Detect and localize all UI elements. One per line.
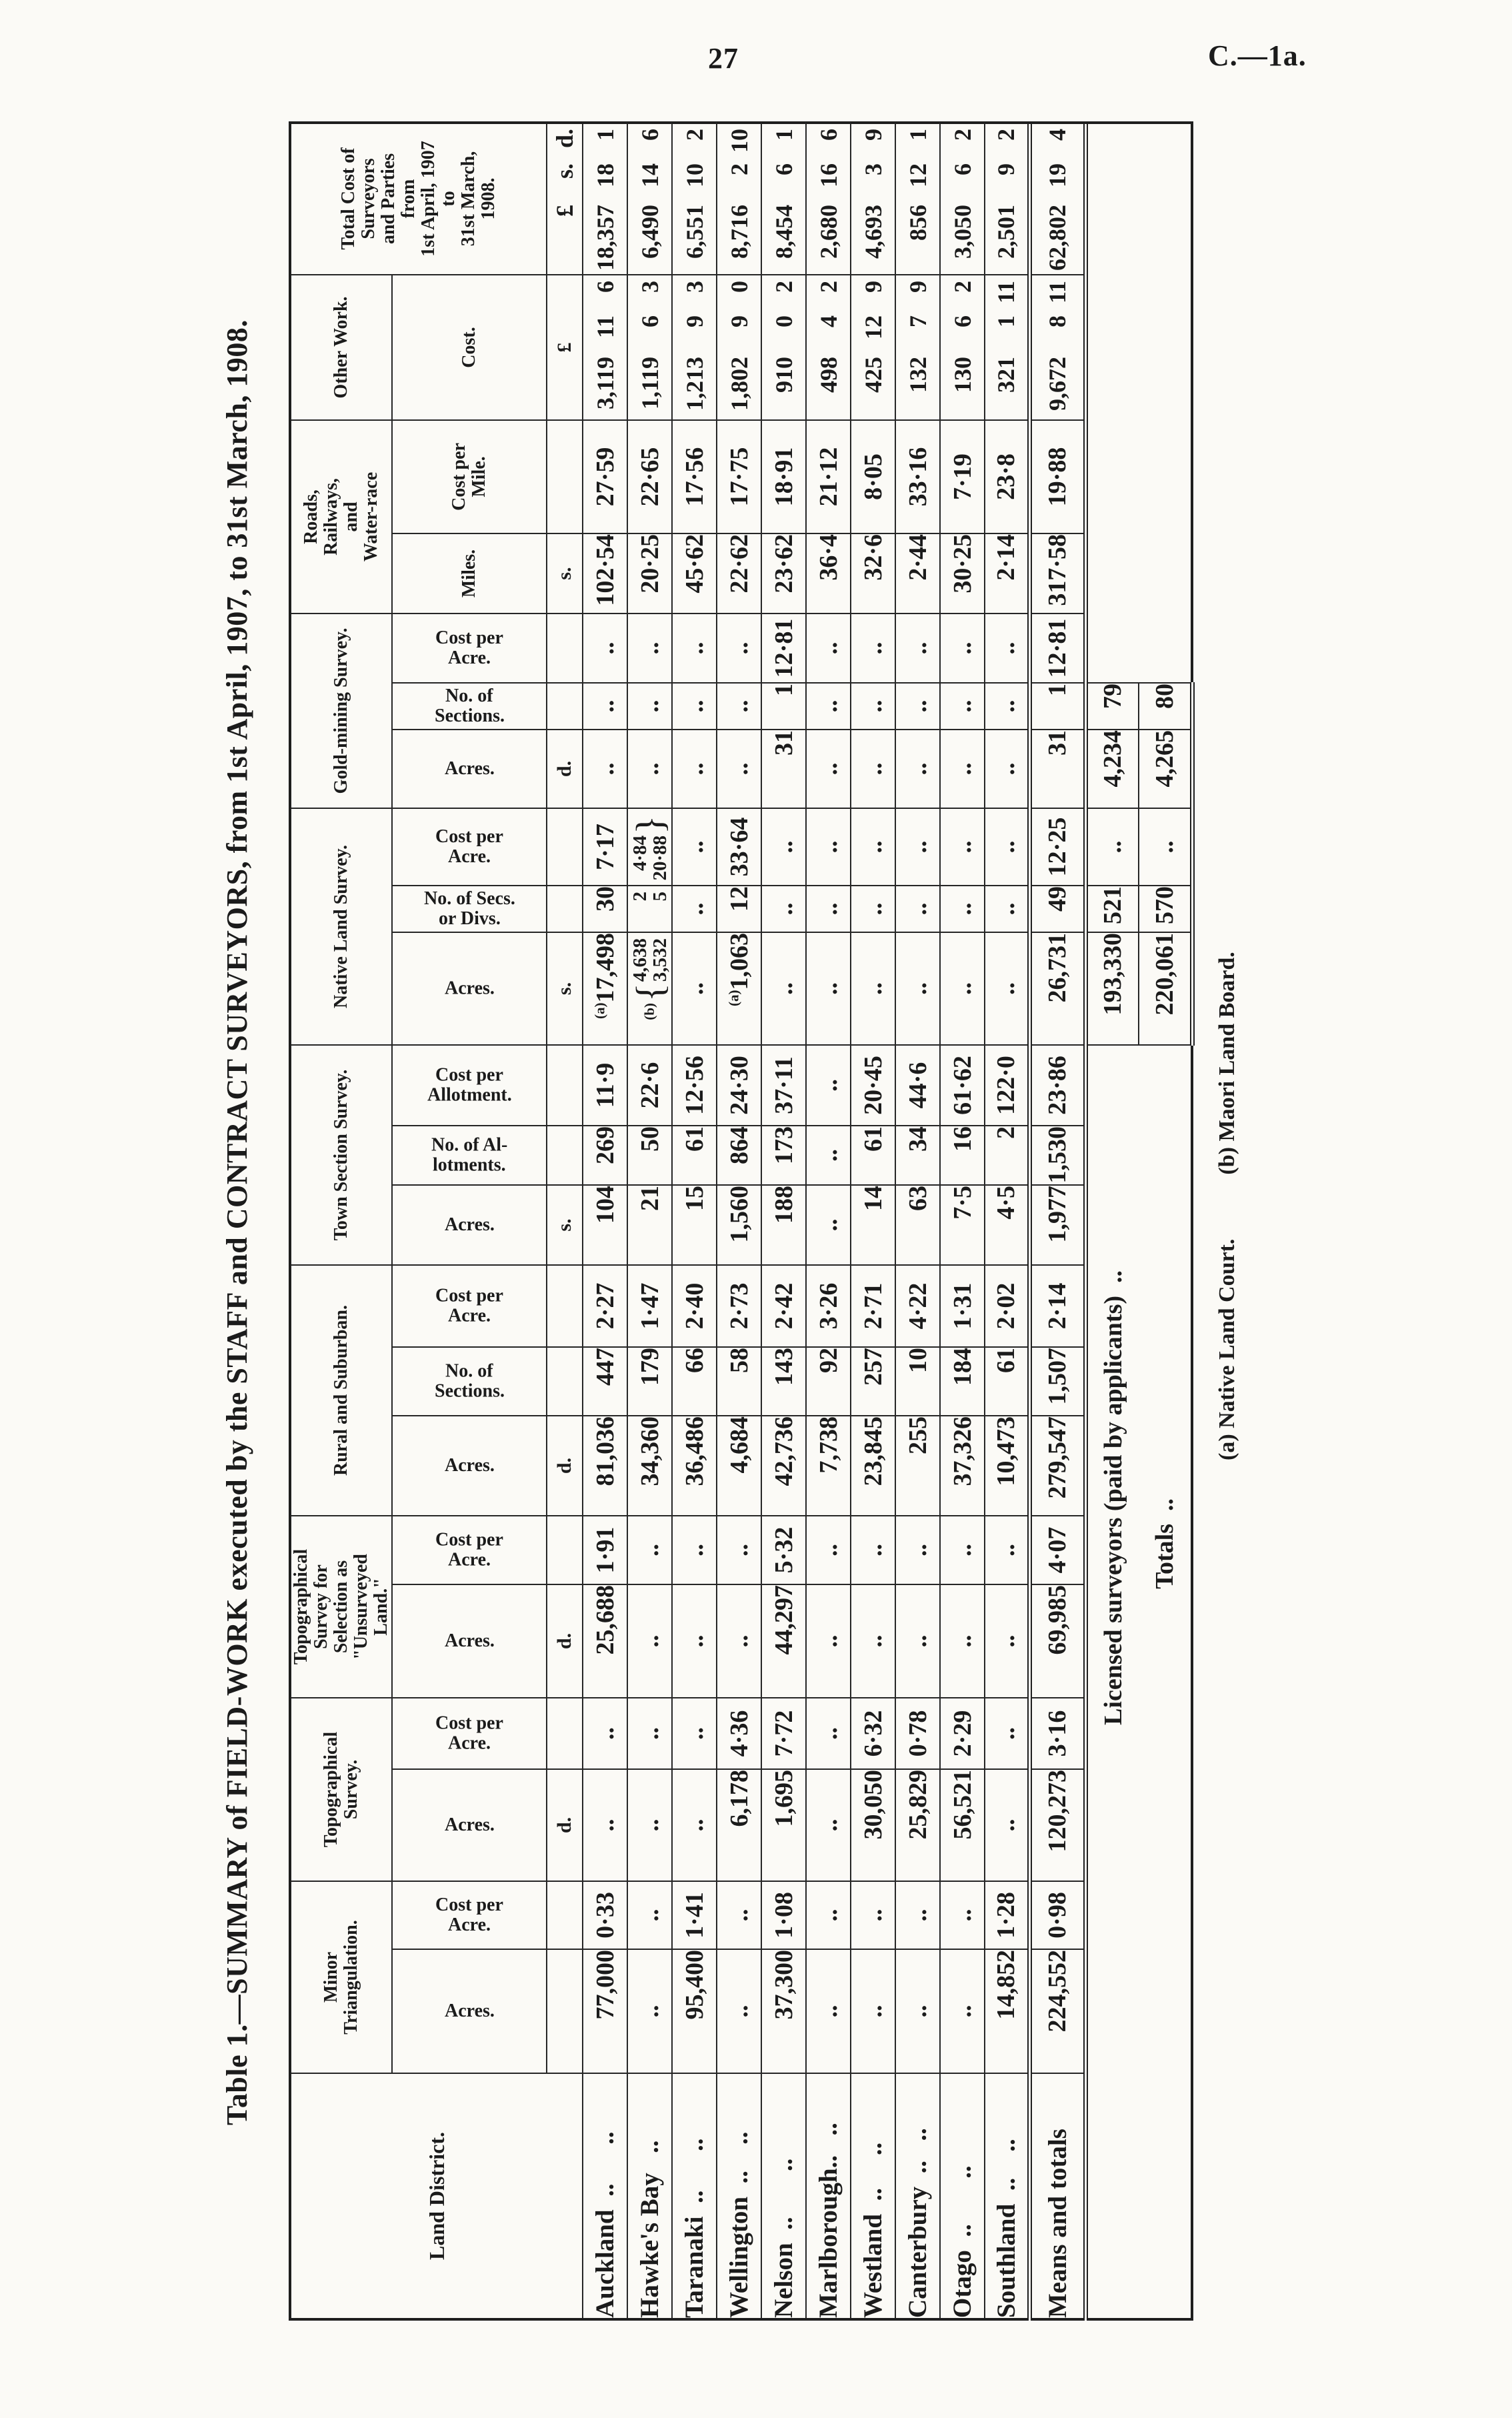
empty-value-cell: .. — [717, 1516, 761, 1584]
money-value: 6,551102 — [681, 123, 709, 274]
money-value-cell: 3,05062 — [940, 123, 985, 275]
column-group-header: Rural and Suburban. — [290, 1265, 392, 1516]
value-cell: 81,036 — [583, 1416, 627, 1516]
empty-value-cell: .. — [627, 614, 672, 683]
value-cell: 16 — [940, 1126, 985, 1185]
value-cell: 56,521 — [940, 1769, 985, 1881]
value-cell: 2·29 — [940, 1698, 985, 1769]
value-cell: 8·05 — [851, 420, 895, 533]
scanned-document-page: { "page": { "number": "27", "doc_ref": "… — [0, 0, 1512, 2418]
column-sub-header: No. of Sections. — [392, 683, 547, 730]
money-part: 3,050 — [949, 205, 977, 274]
money-value-cell: 2,50192 — [985, 123, 1029, 275]
money-part: 6 — [591, 275, 619, 315]
value-cell: 58 — [717, 1347, 761, 1416]
empty-value-cell: .. — [940, 1881, 985, 1949]
money-part: 9 — [904, 275, 932, 315]
money-value-cell: 2,680166 — [806, 123, 851, 275]
column-sub-header: Acres. — [392, 730, 547, 808]
empty-value-cell: .. — [895, 1584, 940, 1698]
value-cell: 0·33 — [583, 1881, 627, 1949]
district-row: Taranaki .. ..95,4001·41........36,48666… — [672, 123, 717, 2319]
empty-value-cell: .. — [985, 932, 1029, 1045]
money-value-cell: 321111 — [985, 275, 1029, 420]
money-part: 9 — [992, 163, 1020, 205]
money-value-cell: 4,69339 — [851, 123, 895, 275]
footnote-marker: (a) — [591, 1002, 607, 1019]
value-cell: 224,552 — [1029, 1949, 1085, 2073]
value-cell: 188 — [761, 1185, 806, 1265]
empty-value-cell: .. — [627, 1584, 672, 1698]
units-cell — [547, 420, 583, 533]
money-value: 1,80290 — [725, 275, 753, 419]
blank-cell — [1085, 1045, 1139, 1126]
empty-value-cell: .. — [940, 932, 985, 1045]
value-cell: 22·62 — [717, 533, 761, 614]
value-cell: 102·54 — [583, 533, 627, 614]
extension-row-label: Licensed surveyors (paid by applicants) … — [1085, 1265, 1139, 2319]
blank-cell — [1085, 1185, 1139, 1265]
money-part: 2 — [949, 123, 977, 163]
money-value-cell: 1,80290 — [717, 275, 761, 420]
extension-value-cell: .. — [1085, 808, 1139, 886]
district-label: Auckland .. .. — [583, 2073, 627, 2319]
units-cell — [547, 1949, 583, 2073]
empty-value-cell: .. — [672, 886, 717, 932]
money-part: 2 — [770, 275, 798, 315]
value-cell: 0·98 — [1029, 1881, 1085, 1949]
value-cell: 7·72 — [761, 1698, 806, 1769]
money-part: d. — [551, 123, 579, 163]
value-cell: 5·32 — [761, 1516, 806, 1584]
table-footnotes: (a) Native Land Court.(b) Maori Land Boa… — [1215, 888, 1240, 1460]
empty-value-cell: .. — [627, 683, 672, 730]
value-cell: 255 — [895, 1416, 940, 1516]
empty-value-cell: .. — [717, 1584, 761, 1698]
value-cell: 20·25 — [627, 533, 672, 614]
value-cell: 37,326 — [940, 1416, 985, 1516]
empty-value-cell: .. — [895, 808, 940, 886]
value-cell: 6·32 — [851, 1698, 895, 1769]
money-value: 3,119116 — [591, 275, 619, 419]
value-cell: 269 — [583, 1126, 627, 1185]
money-part: 9,672 — [1043, 357, 1071, 419]
column-sub-header: Cost per Mile. — [392, 420, 547, 533]
money-value: 62,802194 — [1043, 123, 1071, 274]
value-cell: 44,297 — [761, 1584, 806, 1698]
empty-value-cell: .. — [940, 808, 985, 886]
value-cell: 120,273 — [1029, 1769, 1085, 1881]
column-group-header: Roads, Railways, and Water-race — [290, 420, 392, 614]
value-cell: 179 — [627, 1347, 672, 1416]
empty-value-cell: .. — [985, 683, 1029, 730]
money-part: 321 — [992, 357, 1020, 419]
value-cell: 37·11 — [761, 1045, 806, 1126]
value-cell: 61 — [672, 1126, 717, 1185]
empty-value-cell: .. — [672, 1698, 717, 1769]
empty-value-cell: .. — [806, 1516, 851, 1584]
units-cell — [547, 614, 583, 683]
empty-value-cell: .. — [806, 1584, 851, 1698]
empty-value-cell: .. — [627, 1949, 672, 2073]
column-sub-header: Cost per Acre. — [392, 1881, 547, 1949]
money-value: 2,50192 — [992, 123, 1020, 274]
money-part: 132 — [904, 357, 932, 419]
column-sub-header: No. of Al- lotments. — [392, 1126, 547, 1185]
empty-value-cell: .. — [895, 932, 940, 1045]
empty-value-cell: .. — [985, 1516, 1029, 1584]
blank-cell — [1085, 533, 1139, 614]
units-cell — [547, 886, 583, 932]
blank-cell — [1085, 614, 1139, 683]
money-part: 2 — [992, 123, 1020, 163]
empty-value-cell: .. — [627, 1516, 672, 1584]
value-cell: 2·42 — [761, 1265, 806, 1347]
value-cell: 22·6 — [627, 1045, 672, 1126]
value-cell: 1·31 — [940, 1265, 985, 1347]
empty-value-cell: .. — [985, 730, 1029, 808]
empty-value-cell: .. — [985, 1769, 1029, 1881]
units-cell: d. — [547, 1769, 583, 1881]
money-part: 856 — [904, 205, 932, 274]
extension-value-cell: 521 — [1085, 886, 1139, 932]
money-part: 6 — [949, 163, 977, 205]
empty-value-cell: .. — [806, 730, 851, 808]
value-cell: 14 — [851, 1185, 895, 1265]
money-part: 1 — [591, 123, 619, 163]
money-part: 3 — [681, 275, 709, 315]
units-cell — [547, 808, 583, 886]
money-part: 6 — [770, 163, 798, 205]
district-row: Nelson .. ..37,3001·081,6957·7244,2975·3… — [761, 123, 806, 2319]
value-cell: 12 — [717, 886, 761, 932]
money-part: 6 — [636, 315, 664, 357]
value-cell: 26,731 — [1029, 932, 1085, 1045]
money-value-cell: 49842 — [806, 275, 851, 420]
blank-cell — [1085, 1126, 1139, 1185]
money-value: 1,21393 — [681, 275, 709, 419]
column-group-header: Native Land Survey. — [290, 808, 392, 1045]
value-cell: 11·9 — [583, 1045, 627, 1126]
blank-cell — [1139, 420, 1192, 533]
units-cell: s. — [547, 932, 583, 1045]
empty-value-cell: .. — [806, 1698, 851, 1769]
empty-value-cell: .. — [672, 808, 717, 886]
value-cell: 1,530 — [1029, 1126, 1085, 1185]
value-cell: 2·44 — [895, 533, 940, 614]
empty-value-cell: .. — [717, 614, 761, 683]
stacked-cell: 4·84 20·88} — [627, 808, 672, 886]
money-part: 6,551 — [681, 205, 709, 274]
money-part: 6,490 — [636, 205, 664, 274]
empty-value-cell: .. — [940, 730, 985, 808]
means-and-totals-label: Means and totals — [1029, 2073, 1085, 2319]
summary-table: Land District.Minor Triangulation.Topogr… — [289, 121, 1195, 2321]
empty-value-cell: .. — [806, 1949, 851, 2073]
value-cell: 12·81 — [761, 614, 806, 683]
footnote-marker: (b) — [641, 1003, 658, 1020]
brace-glyph: { — [631, 982, 669, 1003]
empty-value-cell: .. — [851, 886, 895, 932]
empty-value-cell: .. — [851, 808, 895, 886]
column-group-header: Other Work. — [290, 275, 392, 420]
sub-header-row: Acres.Cost per Acre.Acres.Cost per Acre.… — [392, 123, 547, 2319]
empty-value-cell: .. — [851, 683, 895, 730]
totals-row: Means and totals224,5520·98120,2733·1669… — [1029, 123, 1085, 2319]
value-cell: 49 — [1029, 886, 1085, 932]
units-cell — [547, 683, 583, 730]
empty-value-cell: .. — [895, 886, 940, 932]
extension-value-cell: 4,265 — [1139, 730, 1192, 808]
units-cell — [547, 1516, 583, 1584]
money-value: 4,69339 — [859, 123, 887, 274]
empty-value-cell: .. — [761, 808, 806, 886]
value-cell: 2 — [985, 1126, 1029, 1185]
stacked-cell: (b){4,638 3,532 — [627, 932, 672, 1045]
empty-value-cell: .. — [627, 1698, 672, 1769]
money-value-cell: 62,802194 — [1029, 123, 1085, 275]
value-cell: 27·59 — [583, 420, 627, 533]
money-value-cell: 8,45461 — [761, 123, 806, 275]
money-part: 7 — [904, 315, 932, 357]
extension-row: Totals ..220,061570..4,26580 — [1139, 123, 1192, 2319]
empty-value-cell: .. — [851, 1584, 895, 1698]
money-value: £s.d. — [551, 123, 579, 274]
column-sub-header: Cost per Acre. — [392, 614, 547, 683]
value-cell: 4,684 — [717, 1416, 761, 1516]
empty-value-cell: .. — [672, 1516, 717, 1584]
value-cell: 1,977 — [1029, 1185, 1085, 1265]
money-value: 2,680166 — [815, 123, 843, 274]
value-cell: 7·19 — [940, 420, 985, 533]
money-value-cell: 13062 — [940, 275, 985, 420]
value-cell: 15 — [672, 1185, 717, 1265]
column-sub-header: Acres. — [392, 932, 547, 1045]
money-part: 4,693 — [859, 205, 887, 274]
value-cell: 66 — [672, 1347, 717, 1416]
empty-value-cell: .. — [895, 1881, 940, 1949]
column-sub-header: No. of Sections. — [392, 1347, 547, 1416]
empty-value-cell: .. — [895, 1949, 940, 2073]
empty-value-cell: .. — [583, 1769, 627, 1881]
money-value: 49842 — [815, 275, 843, 419]
column-sub-header: Cost per Acre. — [392, 808, 547, 886]
blank-cell — [1139, 1185, 1192, 1265]
empty-value-cell: .. — [851, 932, 895, 1045]
empty-value-cell: .. — [895, 614, 940, 683]
money-part: 11 — [1043, 275, 1071, 315]
value-cell: 10 — [895, 1347, 940, 1416]
empty-value-cell: .. — [806, 1185, 851, 1265]
value-cell: 257 — [851, 1347, 895, 1416]
column-sub-header: Miles. — [392, 533, 547, 614]
value-cell: 2·27 — [583, 1265, 627, 1347]
money-part: 6 — [949, 315, 977, 357]
district-label: Nelson .. .. — [761, 2073, 806, 2319]
empty-value-cell: .. — [806, 1045, 851, 1126]
empty-value-cell: .. — [717, 683, 761, 730]
empty-value-cell: .. — [985, 1584, 1029, 1698]
value-cell: 30 — [583, 886, 627, 932]
value-cell: 17·75 — [717, 420, 761, 533]
units-cell: s. — [547, 533, 583, 614]
empty-value-cell: .. — [940, 614, 985, 683]
value-cell: 61·62 — [940, 1045, 985, 1126]
empty-value-cell: .. — [851, 1949, 895, 2073]
value-cell: 61 — [851, 1126, 895, 1185]
district-row: Canterbury .. ......25,8290·78....255104… — [895, 123, 940, 2319]
money-value-cell: 9,672811 — [1029, 275, 1085, 420]
column-group-header: Topographical Survey for Selection as "U… — [290, 1516, 392, 1698]
value-cell: 4·22 — [895, 1265, 940, 1347]
value-cell: 2·14 — [1029, 1265, 1085, 1347]
column-sub-header: Acres. — [392, 1949, 547, 2073]
money-value-cell: 18,357181 — [583, 123, 627, 275]
empty-value-cell: .. — [583, 1698, 627, 1769]
table-title: Table 1.—SUMMARY of FIELD-WORK executed … — [220, 124, 254, 2321]
money-part: 11 — [992, 275, 1020, 315]
money-part: 3 — [859, 163, 887, 205]
money-value-cell: 1,11963 — [627, 275, 672, 420]
district-label: Southland .. .. — [985, 2073, 1029, 2319]
empty-value-cell: .. — [672, 932, 717, 1045]
column-sub-header: Cost per Acre. — [392, 1698, 547, 1769]
money-part: 2 — [815, 275, 843, 315]
table-body: Auckland .. ..77,0000·33....25,6881·9181… — [583, 123, 1192, 2319]
value-cell: 4·5 — [985, 1185, 1029, 1265]
value-cell: 42,736 — [761, 1416, 806, 1516]
money-value-cell: 91002 — [761, 275, 806, 420]
value-cell: 1·28 — [985, 1881, 1029, 1949]
value-cell: 1·47 — [627, 1265, 672, 1347]
empty-value-cell: .. — [806, 614, 851, 683]
value-cell: 1 — [761, 683, 806, 730]
value-cell: 14,852 — [985, 1949, 1029, 2073]
value-cell: 184 — [940, 1347, 985, 1416]
value-cell: 32·6 — [851, 533, 895, 614]
value-cell: 2·14 — [985, 533, 1029, 614]
value-cell: 34 — [895, 1126, 940, 1185]
money-part: 11 — [591, 315, 619, 357]
blank-cell — [1139, 1126, 1192, 1185]
money-part: 8,454 — [770, 205, 798, 274]
value-cell: 12·56 — [672, 1045, 717, 1126]
value-stack: 4·84 20·88 — [630, 836, 670, 881]
money-part: 1,119 — [636, 357, 664, 419]
column-group-header: Minor Triangulation. — [290, 1881, 392, 2073]
value-cell: 77,000 — [583, 1949, 627, 2073]
value-cell: 23·62 — [761, 533, 806, 614]
value-cell: (a)1,063 — [717, 932, 761, 1045]
empty-value-cell: .. — [806, 932, 851, 1045]
value-cell: 7,738 — [806, 1416, 851, 1516]
money-part: 1 — [904, 123, 932, 163]
value-cell: 122·0 — [985, 1045, 1029, 1126]
value-cell: 50 — [627, 1126, 672, 1185]
units-cell: d. — [547, 730, 583, 808]
money-part: 2 — [725, 163, 753, 205]
empty-value-cell: .. — [851, 1881, 895, 1949]
column-group-header: Gold-mining Survey. — [290, 614, 392, 808]
extension-value-cell: 79 — [1085, 683, 1139, 730]
value-cell: 1·41 — [672, 1881, 717, 1949]
empty-value-cell: .. — [627, 1881, 672, 1949]
value-cell: 1,695 — [761, 1769, 806, 1881]
empty-value-cell: .. — [761, 932, 806, 1045]
extension-row-label: Totals .. — [1139, 1265, 1192, 2319]
empty-value-cell: .. — [806, 1769, 851, 1881]
money-part: 130 — [949, 357, 977, 419]
value-cell: 2·73 — [717, 1265, 761, 1347]
column-group-header: Town Section Survey. — [290, 1045, 392, 1265]
money-value: 8,45461 — [770, 123, 798, 274]
empty-value-cell: .. — [851, 1516, 895, 1584]
value-cell: 6,178 — [717, 1769, 761, 1881]
value-cell: 7·17 — [583, 808, 627, 886]
value-cell: 104 — [583, 1185, 627, 1265]
group-header-row: Land District.Minor Triangulation.Topogr… — [290, 123, 392, 2319]
money-part: 910 — [770, 357, 798, 419]
value-cell: 33·16 — [895, 420, 940, 533]
value-cell: 1·91 — [583, 1516, 627, 1584]
value-cell: 447 — [583, 1347, 627, 1416]
units-row: d.d.d.s.s.d.s.££s.d.£s.d. — [547, 123, 583, 2319]
blank-cell — [1139, 1045, 1192, 1126]
units-cell — [547, 1881, 583, 1949]
column-sub-header: No. of Secs. or Divs. — [392, 886, 547, 932]
value-cell: 23·8 — [985, 420, 1029, 533]
money-value: 8,716210 — [725, 123, 753, 274]
district-row: Otago .. ......56,5212·29....37,3261841·… — [940, 123, 985, 2319]
empty-value-cell: .. — [672, 1769, 717, 1881]
value-cell: 23,845 — [851, 1416, 895, 1516]
empty-value-cell: .. — [583, 614, 627, 683]
blank-cell — [1139, 614, 1192, 683]
units-cell: d. — [547, 1416, 583, 1516]
district-row: Marlborough.. ..............7,738923·26.… — [806, 123, 851, 2319]
money-value: 13062 — [949, 275, 977, 419]
units-cell — [547, 1126, 583, 1185]
money-part: 2,680 — [815, 205, 843, 274]
value-cell: 18·91 — [761, 420, 806, 533]
empty-value-cell: .. — [895, 730, 940, 808]
units-cell — [547, 1265, 583, 1347]
empty-value-cell: .. — [627, 730, 672, 808]
stacked-cell: 2 5 — [627, 886, 672, 932]
blank-cell — [1085, 420, 1139, 533]
empty-value-cell: .. — [583, 683, 627, 730]
empty-value-cell: .. — [806, 683, 851, 730]
value-cell: 4·07 — [1029, 1516, 1085, 1584]
money-part: 4 — [1043, 123, 1071, 163]
value-cell: 0·78 — [895, 1698, 940, 1769]
blank-cell — [1139, 533, 1192, 614]
money-value: 6,490146 — [636, 123, 664, 274]
money-part: 498 — [815, 357, 843, 419]
money-part: 62,802 — [1043, 205, 1071, 274]
money-part: 16 — [815, 163, 843, 205]
money-value: 13279 — [904, 275, 932, 419]
extension-value-cell: 570 — [1139, 886, 1192, 932]
value-cell: 36,486 — [672, 1416, 717, 1516]
money-part: 8,716 — [725, 205, 753, 274]
stacked-values: 4·84 20·88} — [630, 809, 670, 885]
money-part: 1,213 — [681, 357, 709, 419]
footnote-b: (b) Maori Land Board. — [1215, 952, 1239, 1174]
value-cell: 4·36 — [717, 1698, 761, 1769]
value-cell: 37,300 — [761, 1949, 806, 2073]
empty-value-cell: .. — [583, 730, 627, 808]
